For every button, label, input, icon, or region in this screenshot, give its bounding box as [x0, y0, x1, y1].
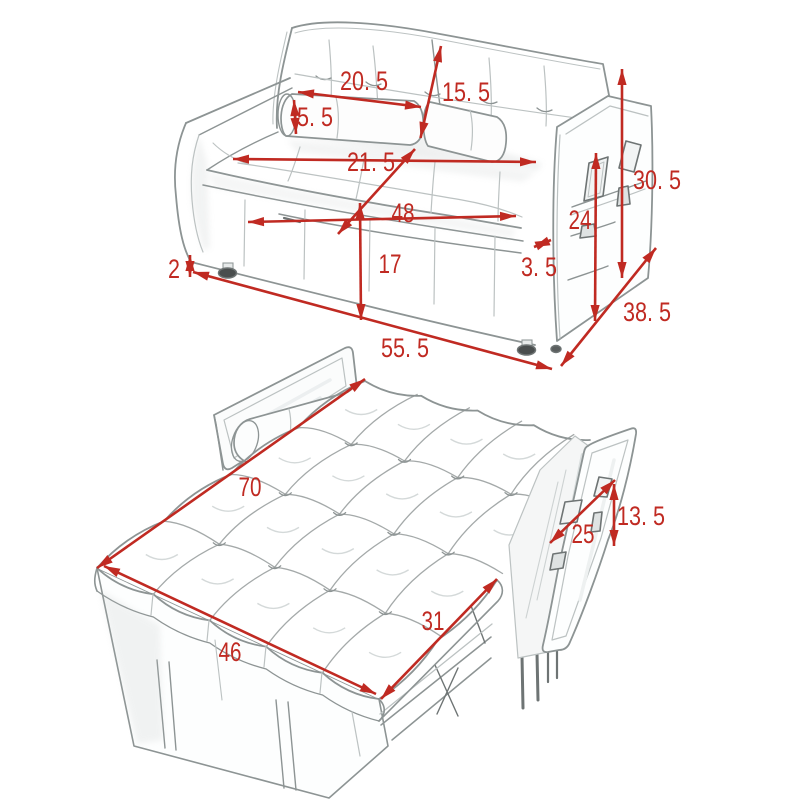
svg-text:46: 46: [219, 637, 242, 667]
svg-text:30. 5: 30. 5: [633, 165, 681, 195]
svg-text:15. 5: 15. 5: [442, 77, 490, 107]
svg-text:13. 5: 13. 5: [617, 501, 665, 531]
svg-text:5. 5: 5. 5: [297, 102, 333, 132]
svg-text:70: 70: [239, 472, 262, 502]
svg-text:31: 31: [422, 606, 445, 636]
svg-text:21. 5: 21. 5: [347, 147, 395, 177]
svg-text:48: 48: [392, 198, 415, 228]
svg-text:24: 24: [569, 205, 592, 235]
svg-text:25: 25: [572, 519, 595, 549]
svg-text:17: 17: [379, 249, 402, 279]
svg-text:55. 5: 55. 5: [381, 333, 429, 363]
svg-text:3. 5: 3. 5: [521, 252, 557, 282]
svg-text:20. 5: 20. 5: [340, 66, 388, 96]
svg-text:38. 5: 38. 5: [623, 297, 671, 327]
svg-text:2: 2: [168, 254, 180, 284]
